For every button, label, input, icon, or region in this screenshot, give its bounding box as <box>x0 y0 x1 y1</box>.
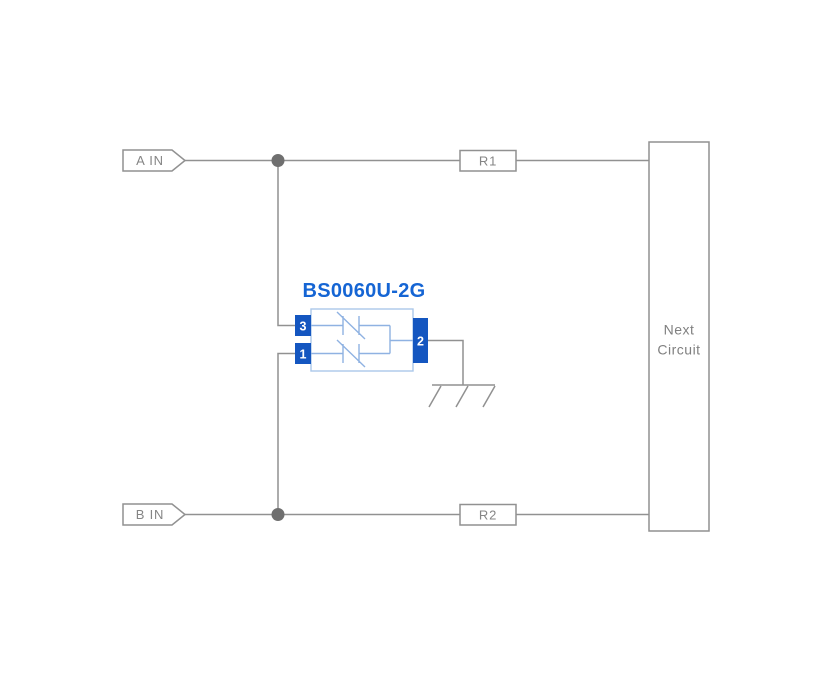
wire-b-to-pin1 <box>278 354 295 515</box>
terminal-b-label: B IN <box>136 507 164 522</box>
next-circuit-label-line1: Next <box>664 322 695 338</box>
pin-1-number: 1 <box>300 348 307 362</box>
resistor-r2-label: R2 <box>479 508 497 523</box>
resistor-r1: R1 <box>460 151 516 172</box>
junction-dot-a <box>272 154 285 167</box>
junction-dot-b <box>272 508 285 521</box>
next-circuit-label-line2: Circuit <box>657 342 700 358</box>
wire-pin2-to-ground <box>428 341 463 386</box>
esd-suppressor-component: BS0060U-2G 3 1 2 <box>295 280 428 371</box>
input-terminal-b: B IN <box>123 504 185 525</box>
schematic-page: A IN B IN R1 R2 Next Circuit BS0060U-2G <box>0 0 832 675</box>
pin-3-number: 3 <box>300 320 307 334</box>
schematic-canvas: A IN B IN R1 R2 Next Circuit BS0060U-2G <box>0 0 832 675</box>
component-part-number: BS0060U-2G <box>302 280 425 302</box>
ground-symbol <box>428 341 495 408</box>
resistor-r2: R2 <box>460 505 516 526</box>
resistor-r1-label: R1 <box>479 154 497 169</box>
ground-hatch-lines <box>429 386 495 407</box>
input-terminal-a: A IN <box>123 150 185 171</box>
next-circuit-block: Next Circuit <box>649 142 709 531</box>
pin-2-number: 2 <box>417 335 424 349</box>
terminal-a-label: A IN <box>136 153 164 168</box>
wire-a-to-pin3 <box>278 161 295 326</box>
